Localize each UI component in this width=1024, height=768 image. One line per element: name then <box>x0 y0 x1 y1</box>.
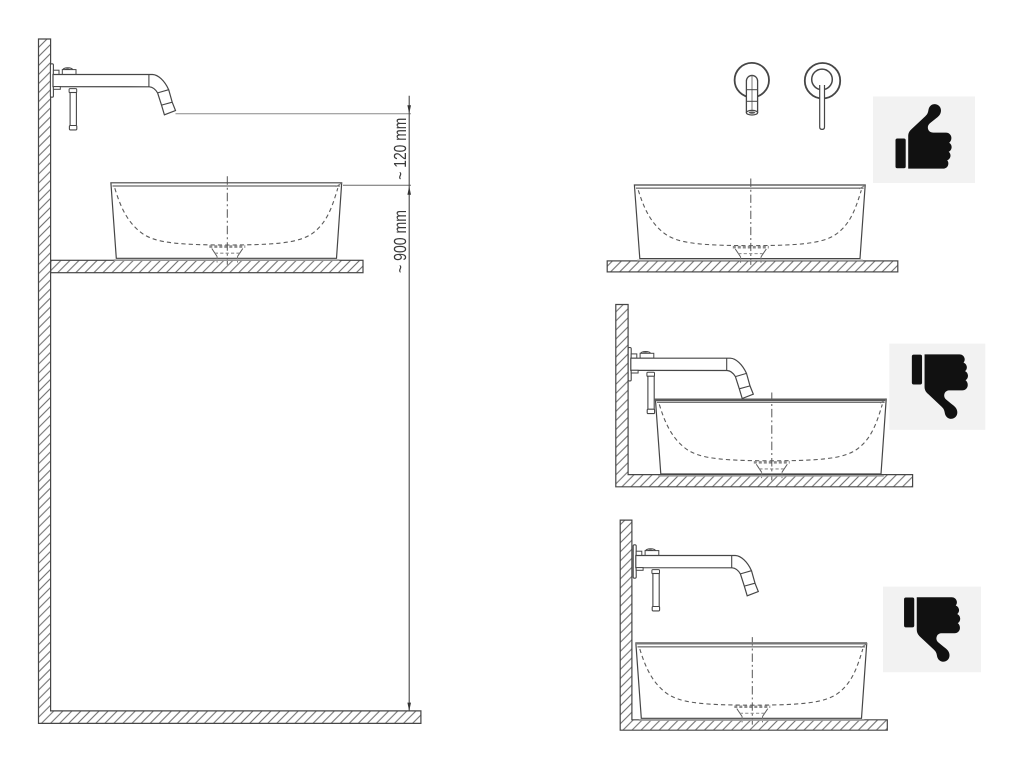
svg-text:~ 120 mm: ~ 120 mm <box>390 118 410 180</box>
svg-text:~ 900 mm: ~ 900 mm <box>390 210 410 273</box>
